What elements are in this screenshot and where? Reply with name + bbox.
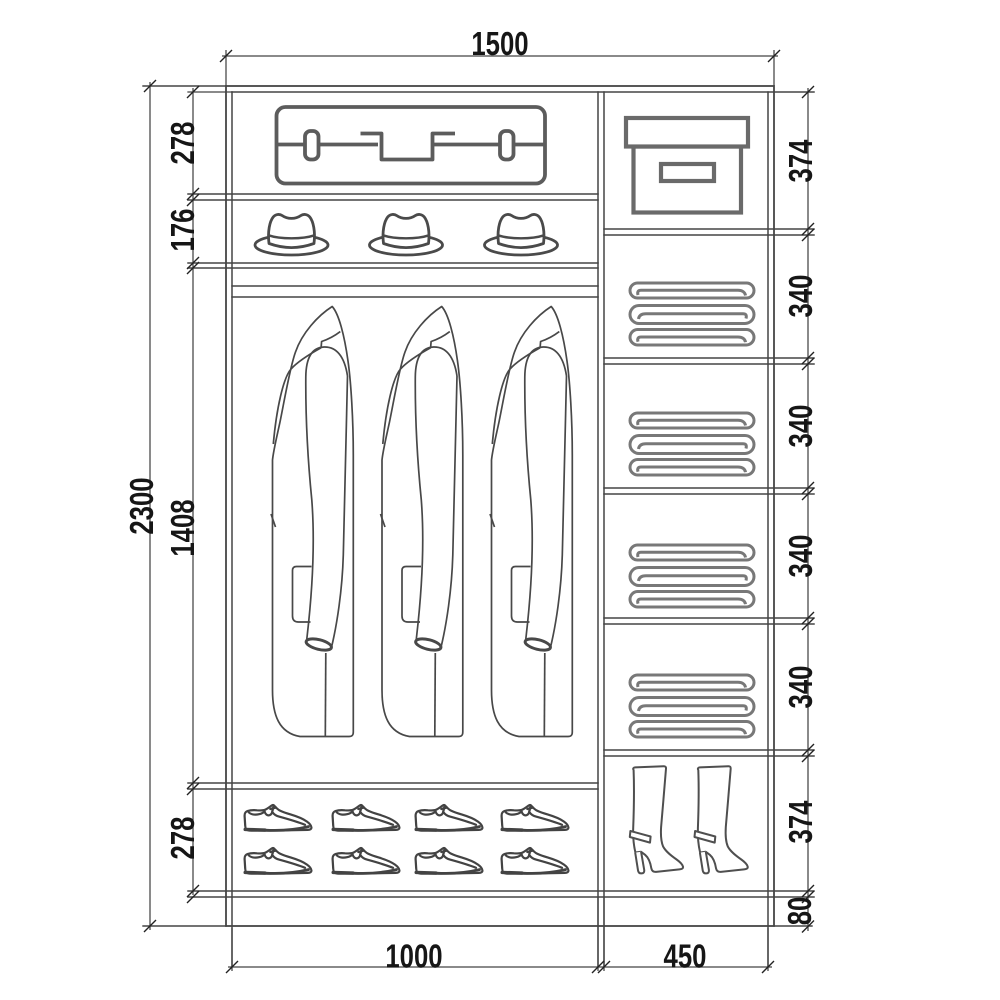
svg-text:2300: 2300: [124, 477, 161, 534]
svg-text:1500: 1500: [471, 26, 528, 63]
svg-text:278: 278: [165, 817, 202, 860]
svg-text:340: 340: [783, 535, 820, 578]
svg-text:1408: 1408: [165, 499, 202, 556]
svg-text:340: 340: [783, 405, 820, 448]
svg-text:450: 450: [664, 939, 707, 976]
svg-text:80: 80: [782, 897, 819, 926]
svg-text:1000: 1000: [385, 939, 442, 976]
svg-text:374: 374: [783, 800, 820, 843]
svg-text:340: 340: [783, 666, 820, 709]
svg-text:176: 176: [165, 209, 202, 252]
svg-text:374: 374: [783, 139, 820, 182]
svg-text:278: 278: [165, 122, 202, 165]
svg-text:340: 340: [783, 275, 820, 318]
